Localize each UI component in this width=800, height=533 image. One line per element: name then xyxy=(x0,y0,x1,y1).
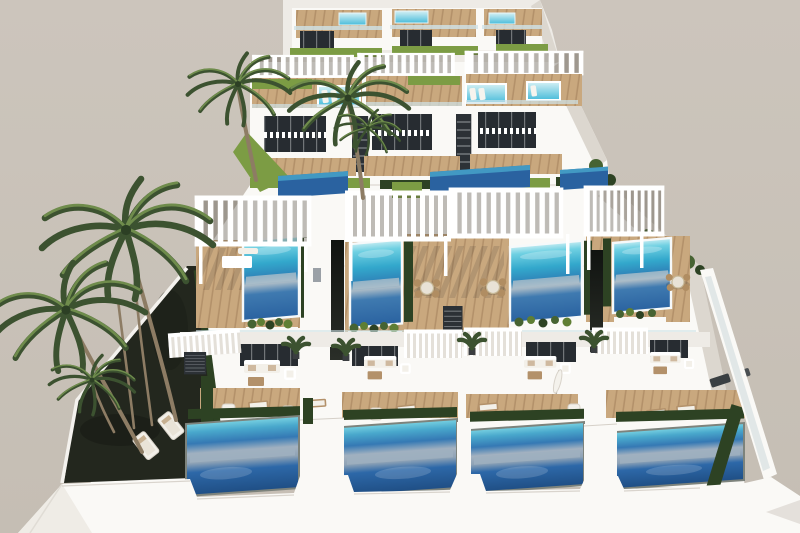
dining-set xyxy=(666,274,690,291)
rooftop-pool xyxy=(339,13,366,25)
lawn-strip xyxy=(408,76,460,85)
middle-pool-3 xyxy=(510,241,582,323)
glass-balustrade xyxy=(466,100,578,104)
dining-set xyxy=(414,279,441,298)
ground-pool-3 xyxy=(470,422,584,493)
ground-pool-1 xyxy=(186,416,299,496)
villa-row-back xyxy=(290,8,548,57)
pergola xyxy=(465,51,584,75)
glass-balustrade xyxy=(294,26,382,30)
balcony-railing xyxy=(478,128,536,134)
staircase xyxy=(184,352,206,374)
balcony-railing xyxy=(372,130,432,136)
ground-pool-2 xyxy=(343,419,457,496)
glass-balustrade xyxy=(482,25,542,29)
bench xyxy=(238,248,258,254)
glass-balustrade xyxy=(366,102,462,106)
middle-pool-2 xyxy=(350,239,402,328)
render-viewport xyxy=(0,0,800,533)
glass-balustrade xyxy=(390,25,478,29)
villa-complex-render xyxy=(0,0,800,533)
pergola xyxy=(449,188,563,239)
outdoor-table xyxy=(222,256,252,268)
rooftop-pool xyxy=(489,13,515,24)
pergola xyxy=(345,191,451,242)
pergola xyxy=(584,186,665,237)
tower-window xyxy=(313,268,321,282)
hedge-on-wall xyxy=(303,398,313,424)
balcony-railing xyxy=(264,132,326,138)
dining-set xyxy=(480,278,507,297)
stair-tower xyxy=(304,238,331,344)
rooftop-pool xyxy=(395,11,428,23)
